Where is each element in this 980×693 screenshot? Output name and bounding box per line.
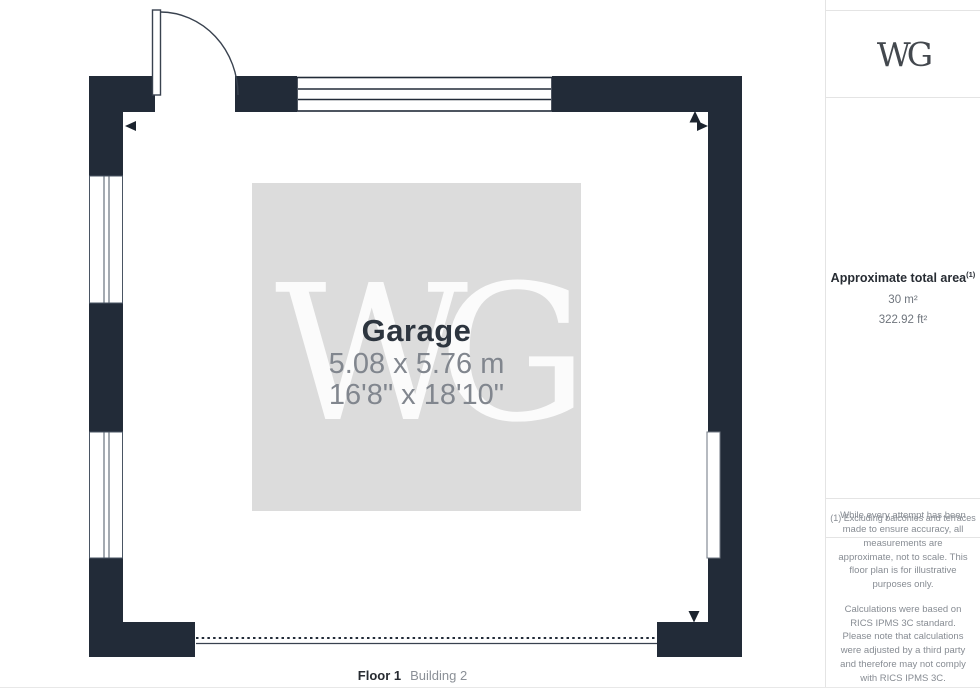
wall-segment bbox=[235, 76, 297, 112]
window-top bbox=[297, 78, 552, 112]
disclaimer-paragraph-1: While every attempt has been made to ens… bbox=[835, 509, 971, 592]
room-labels: Garage 5.08 x 5.76 m 16'8" x 18'10" bbox=[252, 312, 581, 411]
floorplan-page: WG Garage 5.08 x 5.76 m 16'8" x 18'10" F… bbox=[0, 0, 980, 693]
info-sidebar: WG Approximate total area(1) 30 m² 322.9… bbox=[825, 0, 980, 687]
wall-segment bbox=[708, 76, 742, 657]
dimension-arrow-down-icon bbox=[689, 611, 700, 623]
area-imperial-value: 322.92 ft² bbox=[879, 314, 928, 326]
window-left-upper bbox=[90, 176, 123, 303]
page-bottom-divider bbox=[0, 687, 980, 688]
approximate-area-box: Approximate total area(1) 30 m² 322.92 f… bbox=[826, 98, 980, 499]
area-metric-value: 30 m² bbox=[888, 294, 917, 306]
disclaimer-paragraph-2: Calculations were based on RICS IPMS 3C … bbox=[835, 603, 971, 686]
door-swing-arc bbox=[161, 12, 239, 95]
door-leaf bbox=[153, 10, 161, 95]
wall-segment bbox=[89, 303, 123, 432]
building-number: Building 2 bbox=[410, 668, 467, 683]
wall-segment bbox=[657, 622, 742, 657]
dimension-arrow-left-icon bbox=[125, 121, 136, 131]
approximate-area-title: Approximate total area(1) bbox=[831, 270, 976, 285]
room-dimensions-metric: 5.08 x 5.76 m bbox=[252, 349, 581, 380]
approximate-area-title-text: Approximate total area bbox=[831, 272, 966, 286]
window-right bbox=[707, 432, 720, 558]
dimension-arrow-up-icon bbox=[690, 111, 701, 123]
logo-box: WG bbox=[826, 10, 980, 98]
floor-number: Floor 1 bbox=[358, 668, 401, 683]
room-name: Garage bbox=[252, 312, 581, 349]
wall-segment bbox=[89, 622, 195, 657]
approximate-area-footnote-marker: (1) bbox=[966, 270, 975, 279]
window-left-lower bbox=[90, 432, 123, 558]
floor-label: Floor 1 Building 2 bbox=[0, 668, 825, 683]
disclaimer-box: While every attempt has been made to ens… bbox=[826, 538, 980, 687]
wg-logo: WG bbox=[877, 35, 929, 74]
wall-segment bbox=[89, 76, 123, 176]
room-dimensions-imperial: 16'8" x 18'10" bbox=[252, 380, 581, 411]
